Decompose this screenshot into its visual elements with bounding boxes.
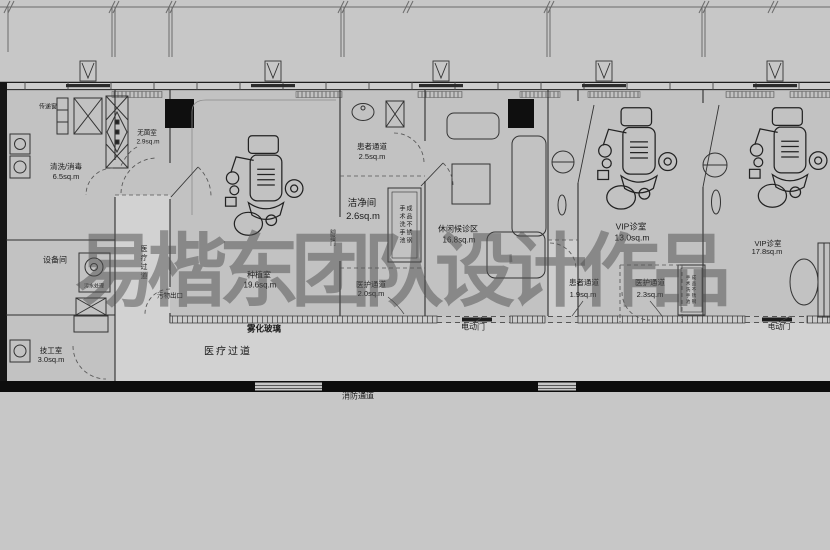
area-label-patient-corridor-b: 1.9sq.m <box>570 291 597 299</box>
label-fog-glass: 雾化玻璃 <box>247 324 281 333</box>
room-label-patient-corridor-a: 患者通道 <box>357 143 387 151</box>
label-pass-window: 传递窗 <box>39 105 57 112</box>
floor-plan-linework <box>0 0 830 550</box>
area-label-waiting: 16.8sq.m <box>443 237 476 246</box>
label-medical-corridor: 医疗过道 <box>204 347 252 358</box>
label-sewage-treatment: 污水处理 <box>84 284 104 290</box>
area-label-clean-room: 2.6sq.m <box>346 212 380 222</box>
area-label-patient-corridor-a: 2.5sq.m <box>359 153 386 161</box>
column <box>165 99 194 128</box>
bottom-exterior-wall <box>0 381 830 392</box>
room-label-staff-corridor-a: 医护通道 <box>356 281 386 289</box>
area-label-vip-b: 17.8sq.m <box>752 248 783 256</box>
room-label-patient-corridor-b: 患者通道 <box>569 279 599 287</box>
label-foot-pedal-door: 脚踏门 <box>328 230 336 247</box>
room-label-waiting: 休闲候诊区 <box>438 226 478 235</box>
label-fire-corridor: 消防通道 <box>342 393 374 402</box>
label-wash-station: 成品不锈钢手术洗手池 <box>397 205 411 245</box>
floor-plan-canvas: 传递窗 清洗/消毒 6.5sq.m 无菌室 2.9sq.m 设备间 污水处理 技… <box>0 0 830 550</box>
grid-line <box>0 1 830 57</box>
area-label-staff-corridor-b: 2.3sq.m <box>637 291 664 299</box>
room-label-sterile: 无菌室 <box>137 129 157 136</box>
facade-vent-symbols <box>80 61 783 81</box>
area-label-vip-a: 13.0sq.m <box>615 233 650 242</box>
fog-glass-partition <box>170 316 830 323</box>
room-fills <box>7 90 830 381</box>
label-wash-station: 成品不锈钢手术洗手池 <box>685 275 697 305</box>
area-label-sterile: 2.9sq.m <box>136 138 159 145</box>
room-label-vip-a: VIP诊室 <box>616 222 647 231</box>
room-label-equipment: 设备间 <box>43 257 67 266</box>
label-electric-door-1: 电动门 <box>461 324 485 333</box>
room-label-technician: 技工室 <box>40 347 63 355</box>
room-label-clean-room: 洁净间 <box>348 199 377 209</box>
room-label-implant: 种植室 <box>247 272 271 281</box>
label-electric-door-2: 电动门 <box>768 323 791 331</box>
column <box>508 99 534 128</box>
area-label-staff-corridor-a: 2.0sq.m <box>358 290 385 298</box>
label-medical-corridor-vertical: 医疗过道 <box>138 245 148 281</box>
area-label-technician: 3.0sq.m <box>38 356 65 364</box>
facade-wall <box>0 82 830 90</box>
label-waste-exit: 污物出口 <box>157 292 183 299</box>
room-label-clean-disinfect: 清洗/消毒 <box>50 163 82 171</box>
area-label-clean-disinfect: 6.5sq.m <box>53 173 80 181</box>
area-label-implant: 19.6sq.m <box>244 282 277 291</box>
room-label-staff-corridor-b: 医护通道 <box>635 279 665 287</box>
